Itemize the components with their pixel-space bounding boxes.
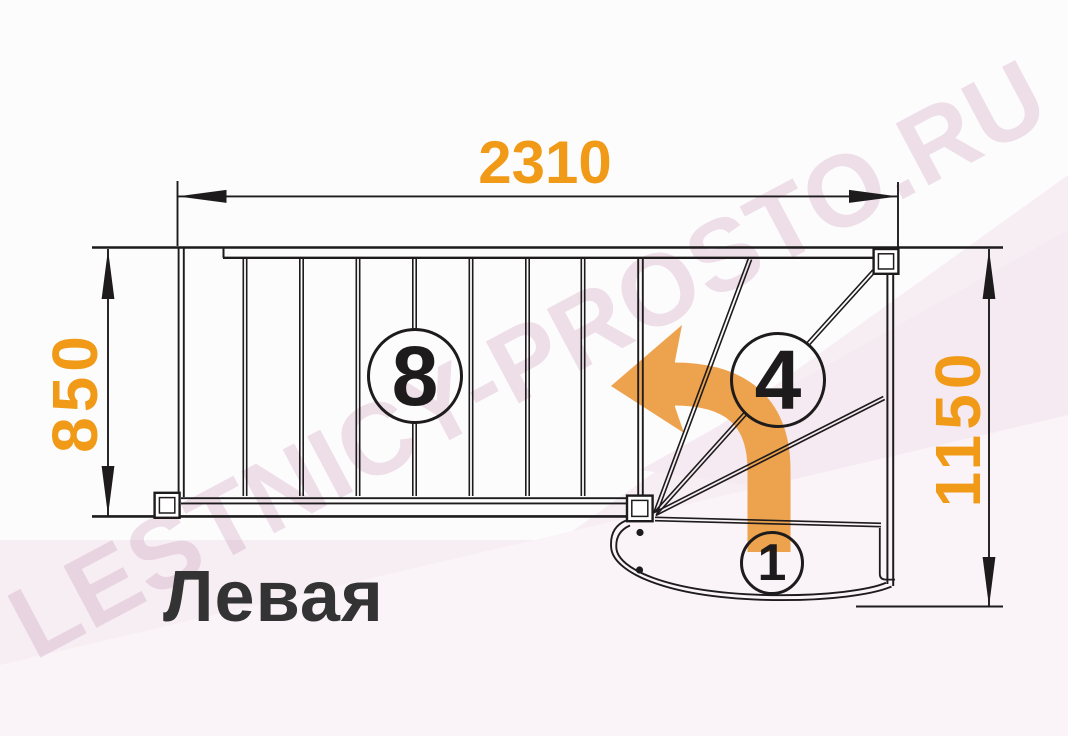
newel-post-top-right-inner [878,254,893,269]
dimension-arrow-down [983,557,996,607]
reference-lines [92,248,1003,517]
stair-plan-svg [0,0,1068,736]
dimension-arrow-left [178,190,227,203]
staircase-plan-drawing: LESTNICY-PROSTO.RU [0,0,1068,736]
step-count-badge-winder: 4 [730,332,826,428]
step-count-badge-straight: 8 [367,328,463,424]
newel-post-corner-inner [632,500,648,516]
left-end-edge [179,247,184,497]
tread-edge [243,259,246,496]
tread-edge [356,259,359,496]
dimension-value-right: 1150 [923,313,993,543]
fixing-dot [636,529,643,536]
tread-edge [469,259,472,496]
fixing-dot [636,566,643,573]
newel-post-bottom-left-inner [159,498,174,513]
bottom-stringer [181,498,627,503]
right-outer-edge [887,273,893,586]
dimension-value-top: 2310 [440,128,650,197]
walk-arrow-head [611,325,684,433]
tread-edge [526,259,529,496]
dimension-value-left: 850 [40,277,110,507]
tread-edge [300,259,303,496]
tread-edge [581,259,584,496]
dimension-arrow-up [983,250,996,300]
caption-label: Левая [163,556,384,638]
dimension-arrow-right [849,190,898,203]
step-number-badge-first: 1 [740,531,804,595]
